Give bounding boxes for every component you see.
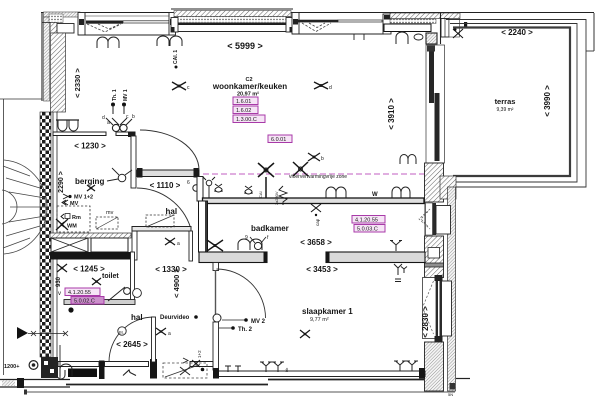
svg-text:v: v: [58, 291, 61, 297]
svg-text:1.6.01: 1.6.01: [236, 99, 251, 105]
svg-text:1.3.00.C: 1.3.00.C: [236, 117, 257, 123]
svg-text:MV 1: MV 1: [123, 89, 129, 101]
svg-text:mv: mv: [106, 210, 114, 216]
svg-text:b: b: [132, 114, 135, 120]
svg-text:Deurvideo: Deurvideo: [160, 315, 190, 321]
svg-text:5N: 5N: [448, 392, 453, 397]
svg-text:cap: cap: [315, 218, 320, 226]
svg-text:< 1230 >: < 1230 >: [74, 142, 106, 151]
svg-text:woonkamer/keuken: woonkamer/keuken: [212, 82, 287, 91]
svg-text:CAI. 1: CAI. 1: [173, 50, 179, 64]
svg-text:20,97 m²: 20,97 m²: [237, 91, 259, 98]
svg-text:CAI: CAI: [258, 191, 263, 198]
svg-text:4.1.20.55: 4.1.20.55: [355, 218, 378, 224]
svg-text:a: a: [177, 241, 180, 247]
svg-text:MV 1+2: MV 1+2: [74, 195, 93, 201]
svg-text:bk: bk: [284, 368, 289, 372]
svg-text:< 5999 >: < 5999 >: [227, 41, 263, 51]
svg-text:Rm: Rm: [72, 215, 81, 221]
svg-text:1.6.02: 1.6.02: [236, 108, 251, 114]
svg-text:W: W: [372, 192, 378, 198]
svg-text:9: 9: [245, 235, 248, 241]
svg-text:1200+: 1200+: [4, 364, 19, 370]
svg-text:Th. 2: Th. 2: [238, 327, 253, 333]
svg-text:< 1245 >: < 1245 >: [73, 265, 105, 274]
svg-text:< 2645 >: < 2645 >: [116, 340, 148, 349]
svg-text:MV 2: MV 2: [251, 319, 266, 325]
svg-text:berging: berging: [75, 177, 104, 186]
svg-text:5.0.03.C: 5.0.03.C: [357, 227, 378, 233]
svg-text:1+2: 1+2: [197, 350, 202, 358]
svg-text:9,39 m²: 9,39 m²: [497, 107, 514, 113]
svg-text:2x230V: 2x230V: [274, 191, 279, 205]
svg-text:< 2830 >: < 2830 >: [421, 306, 430, 338]
svg-text:slaapkamer 1: slaapkamer 1: [302, 307, 353, 316]
svg-text:6: 6: [187, 180, 190, 186]
svg-text:4.1.20.55: 4.1.20.55: [68, 290, 91, 296]
svg-text:9,77 m²: 9,77 m²: [310, 317, 329, 323]
svg-text:d: d: [102, 115, 105, 121]
svg-text:toilet: toilet: [102, 273, 119, 280]
svg-text:< 4900 >: < 4900 >: [172, 268, 181, 298]
svg-text:badkamer: badkamer: [251, 224, 289, 233]
svg-text:< 2240 >: < 2240 >: [501, 28, 533, 37]
svg-text:< 2330 >: < 2330 >: [73, 68, 82, 98]
svg-text:d: d: [329, 85, 332, 91]
svg-text:930: 930: [56, 276, 62, 287]
svg-text:hal: hal: [131, 313, 143, 322]
svg-text:2290 >: 2290 >: [58, 171, 65, 193]
svg-text:< 3990 >: < 3990 >: [543, 85, 552, 117]
svg-text:vloerverwarmingvrije zone: vloerverwarmingvrije zone: [289, 174, 347, 180]
svg-text:a: a: [107, 120, 110, 126]
svg-text:< 3658 >: < 3658 >: [300, 238, 332, 247]
svg-text:BL: BL: [119, 330, 125, 335]
svg-text:WM: WM: [67, 224, 77, 230]
svg-text:a: a: [168, 331, 171, 337]
svg-text:< 3453 >: < 3453 >: [306, 265, 338, 274]
svg-text:< 3910 >: < 3910 >: [387, 98, 396, 130]
svg-text:hal: hal: [166, 207, 178, 216]
svg-text:5.0.02.C: 5.0.02.C: [74, 299, 95, 305]
svg-text:6.0.01: 6.0.01: [271, 137, 286, 143]
svg-text:Th. 1: Th. 1: [112, 89, 118, 101]
svg-text:b: b: [321, 156, 324, 162]
svg-text:terras: terras: [495, 97, 516, 106]
svg-text:< 1110 >: < 1110 >: [150, 181, 181, 190]
